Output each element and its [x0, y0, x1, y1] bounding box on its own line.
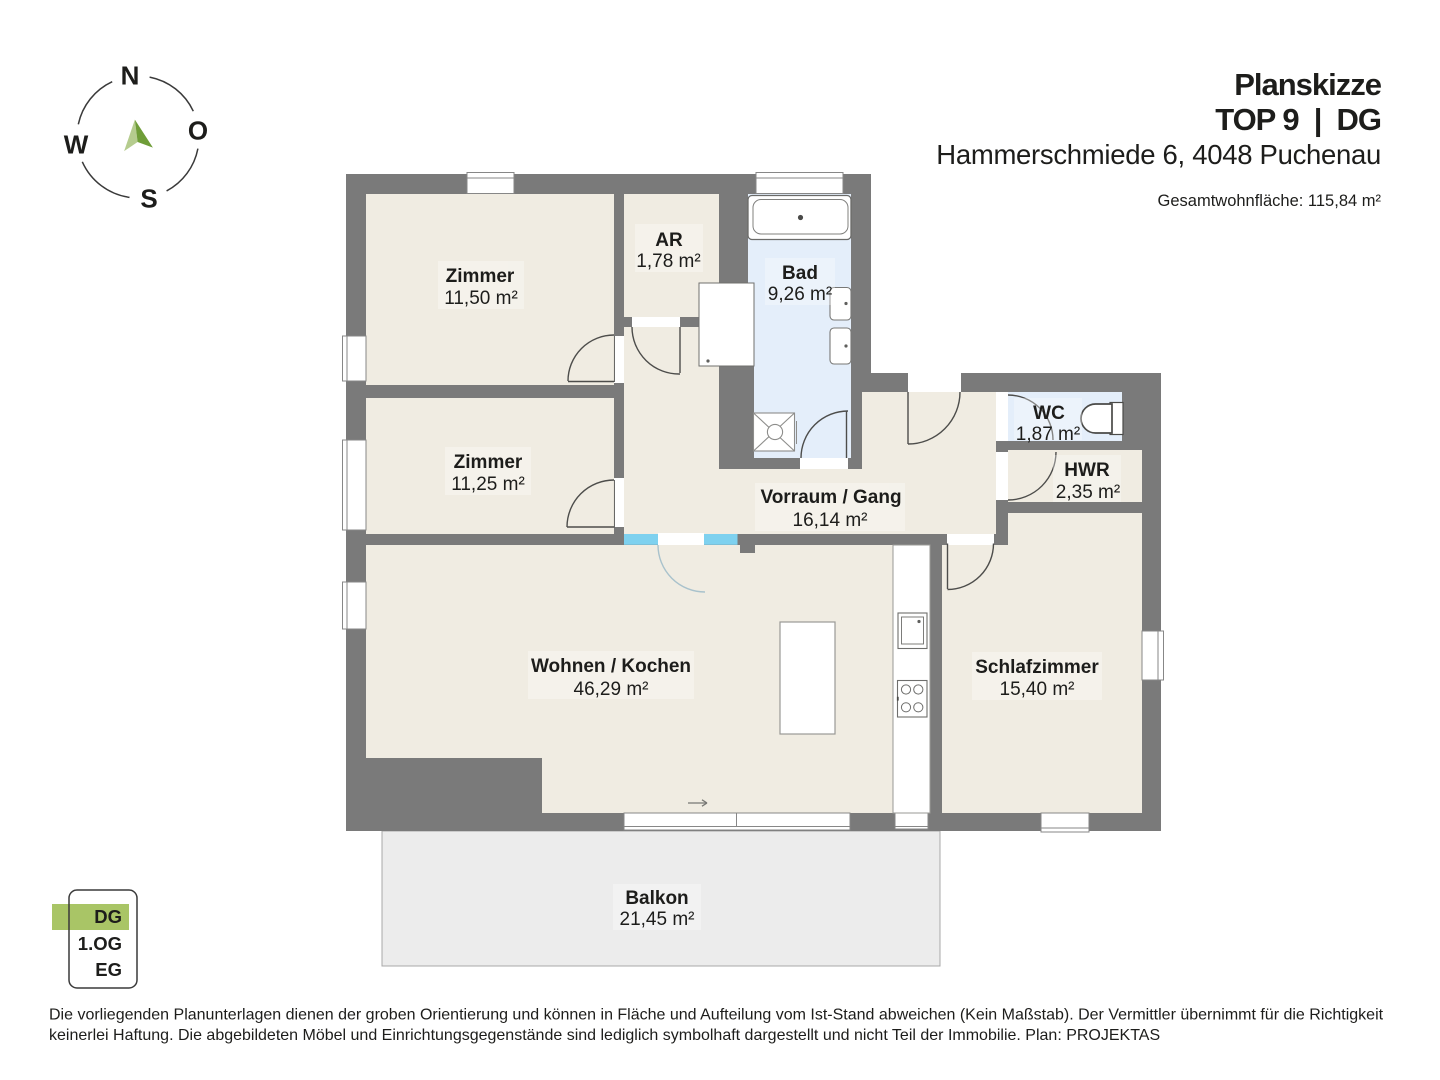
- svg-text:WC: WC: [1033, 403, 1065, 424]
- svg-text:AR: AR: [655, 230, 683, 251]
- svg-text:11,25 m²: 11,25 m²: [451, 474, 525, 495]
- svg-text:21,45 m²: 21,45 m²: [620, 909, 695, 930]
- svg-text:S: S: [140, 183, 157, 213]
- svg-text:Bad: Bad: [782, 263, 818, 284]
- svg-text:Die vorliegenden Planunterlage: Die vorliegenden Planunterlagen dienen d…: [49, 1007, 1384, 1024]
- svg-text:Zimmer: Zimmer: [446, 266, 515, 287]
- svg-text:W: W: [64, 129, 89, 159]
- svg-text:16,14 m²: 16,14 m²: [793, 510, 868, 531]
- svg-text:TOP 9 | DG: TOP 9 | DG: [1215, 102, 1381, 137]
- svg-text:keinerlei Haftung. Die abgebil: keinerlei Haftung. Die abgebildeten Möbe…: [49, 1027, 1160, 1044]
- svg-text:1,78 m²: 1,78 m²: [636, 251, 700, 272]
- svg-text:N: N: [121, 60, 140, 90]
- svg-text:EG: EG: [95, 959, 122, 980]
- svg-text:1.OG: 1.OG: [78, 933, 122, 954]
- svg-text:11,50 m²: 11,50 m²: [444, 288, 518, 309]
- svg-text:O: O: [188, 115, 208, 145]
- svg-text:Hammerschmiede 6, 4048 Puchena: Hammerschmiede 6, 4048 Puchenau: [936, 139, 1381, 170]
- svg-text:Planskizze: Planskizze: [1234, 67, 1382, 102]
- svg-text:9,26 m²: 9,26 m²: [768, 284, 832, 305]
- svg-text:Zimmer: Zimmer: [454, 452, 523, 473]
- svg-text:Balkon: Balkon: [625, 888, 688, 909]
- svg-text:Wohnen / Kochen: Wohnen / Kochen: [531, 656, 691, 677]
- svg-text:46,29 m²: 46,29 m²: [574, 679, 649, 700]
- svg-text:Vorraum / Gang: Vorraum / Gang: [760, 487, 901, 508]
- svg-text:HWR: HWR: [1064, 460, 1110, 481]
- svg-text:2,35 m²: 2,35 m²: [1056, 482, 1120, 503]
- svg-text:1,87 m²: 1,87 m²: [1016, 424, 1080, 445]
- svg-text:15,40 m²: 15,40 m²: [1000, 679, 1075, 700]
- svg-text:Schlafzimmer: Schlafzimmer: [975, 657, 1099, 678]
- svg-text:DG: DG: [94, 906, 122, 927]
- svg-text:Gesamtwohnfläche: 115,84 m²: Gesamtwohnfläche: 115,84 m²: [1158, 192, 1382, 210]
